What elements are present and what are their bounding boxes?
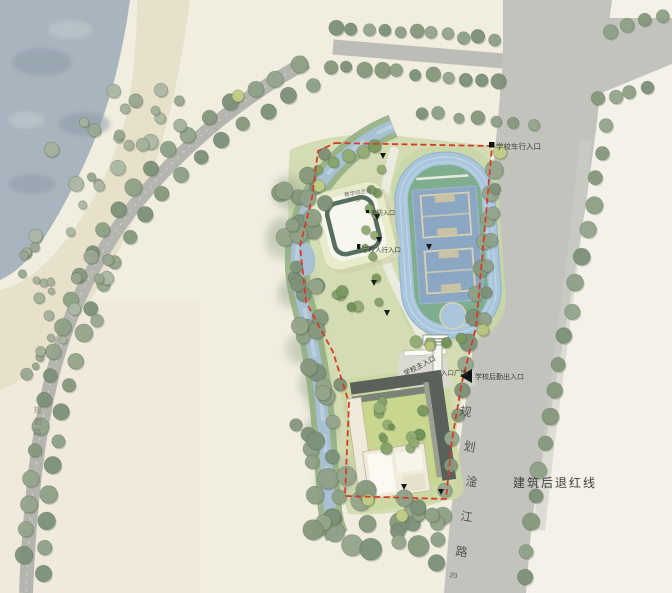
plan-canvas	[0, 0, 672, 593]
throwing-circle	[439, 302, 467, 330]
fire-access-icon	[366, 210, 369, 213]
pedestrian-entrance-icon	[357, 244, 360, 249]
site-plan-image: 建筑后退红线 规 划 淦 江 路 20 规划路 学校车行入口 学校主入口 入口广…	[0, 0, 672, 593]
vehicle-entrance-icon	[489, 142, 495, 148]
